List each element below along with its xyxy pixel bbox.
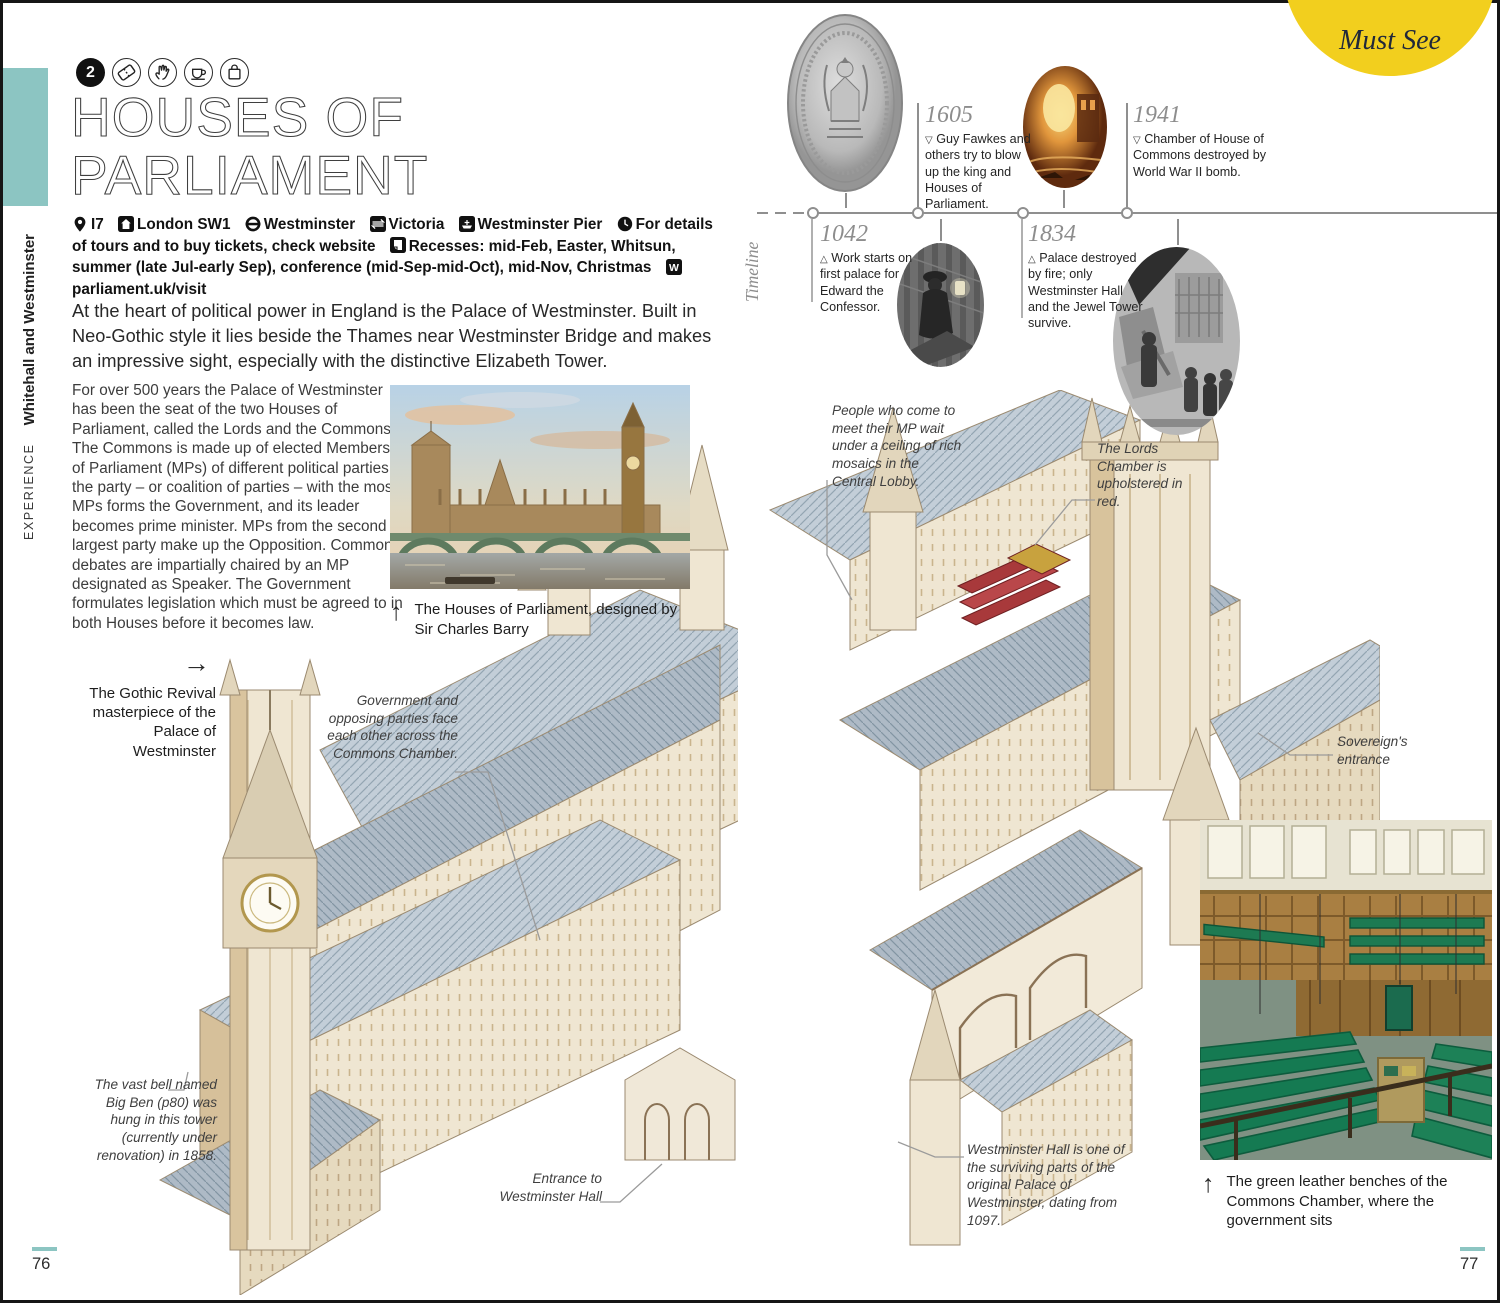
lords-chamber-note: The Lords Chamber is upholstered in red. — [1097, 440, 1193, 511]
timeline-entry-1042: 1042 △ Work starts on first palace for E… — [820, 222, 922, 315]
westminster-hall-note: Westminster Hall is one of the surviving… — [967, 1141, 1132, 1229]
edward-confessor-seal-image — [787, 13, 904, 193]
timeline-year: 1834 — [1028, 222, 1143, 246]
commons-chamber-photo — [1200, 820, 1492, 1160]
triangle-down-icon: ▽ — [1133, 135, 1141, 146]
triangle-down-icon: ▽ — [925, 135, 933, 146]
timeline-year: 1042 — [820, 222, 922, 246]
right-arrow-icon: → — [183, 648, 210, 679]
triangle-up-icon: △ — [820, 254, 828, 265]
timeline-year: 1941 — [1133, 103, 1285, 127]
timeline-entry-text: Guy Fawkes and others try to blow up the… — [925, 132, 1031, 211]
timeline-entry-1941: 1941 ▽ Chamber of House of Commons destr… — [1133, 103, 1285, 180]
central-lobby-note: People who come to meet their MP wait un… — [832, 402, 964, 490]
westminster-hall-entrance-note: Entrance to Westminster Hall — [490, 1170, 602, 1205]
gothic-revival-note: The Gothic Revival masterpiece of the Pa… — [88, 684, 216, 761]
benches-caption-text: The green leather benches of the Commons… — [1227, 1172, 1500, 1231]
commons-chamber-note: Government and opposing parties face eac… — [326, 692, 458, 763]
up-arrow-icon: ↑ — [1202, 1172, 1215, 1197]
sovereigns-entrance-note: Sovereign's entrance — [1337, 733, 1447, 768]
timeline-year: 1605 — [925, 103, 1037, 127]
timeline-entry-text: Work starts on first palace for Edward t… — [820, 251, 912, 314]
book-spread: EXPERIENCE Whitehall and Westminster 2 H… — [0, 0, 1500, 1303]
timeline-entry-1605: 1605 ▽ Guy Fawkes and others try to blow… — [925, 103, 1037, 213]
triangle-up-icon: △ — [1028, 254, 1036, 265]
timeline-entry-text: Palace destroyed by fire; only Westminst… — [1028, 251, 1143, 330]
timeline-entry-text: Chamber of House of Commons destroyed by… — [1133, 132, 1266, 179]
timeline-entry-1834: 1834 △ Palace destroyed by fire; only We… — [1028, 222, 1143, 332]
big-ben-note: The vast bell named Big Ben (p80) was hu… — [80, 1076, 217, 1164]
benches-photo-caption: ↑ The green leather benches of the Commo… — [1202, 1172, 1500, 1231]
